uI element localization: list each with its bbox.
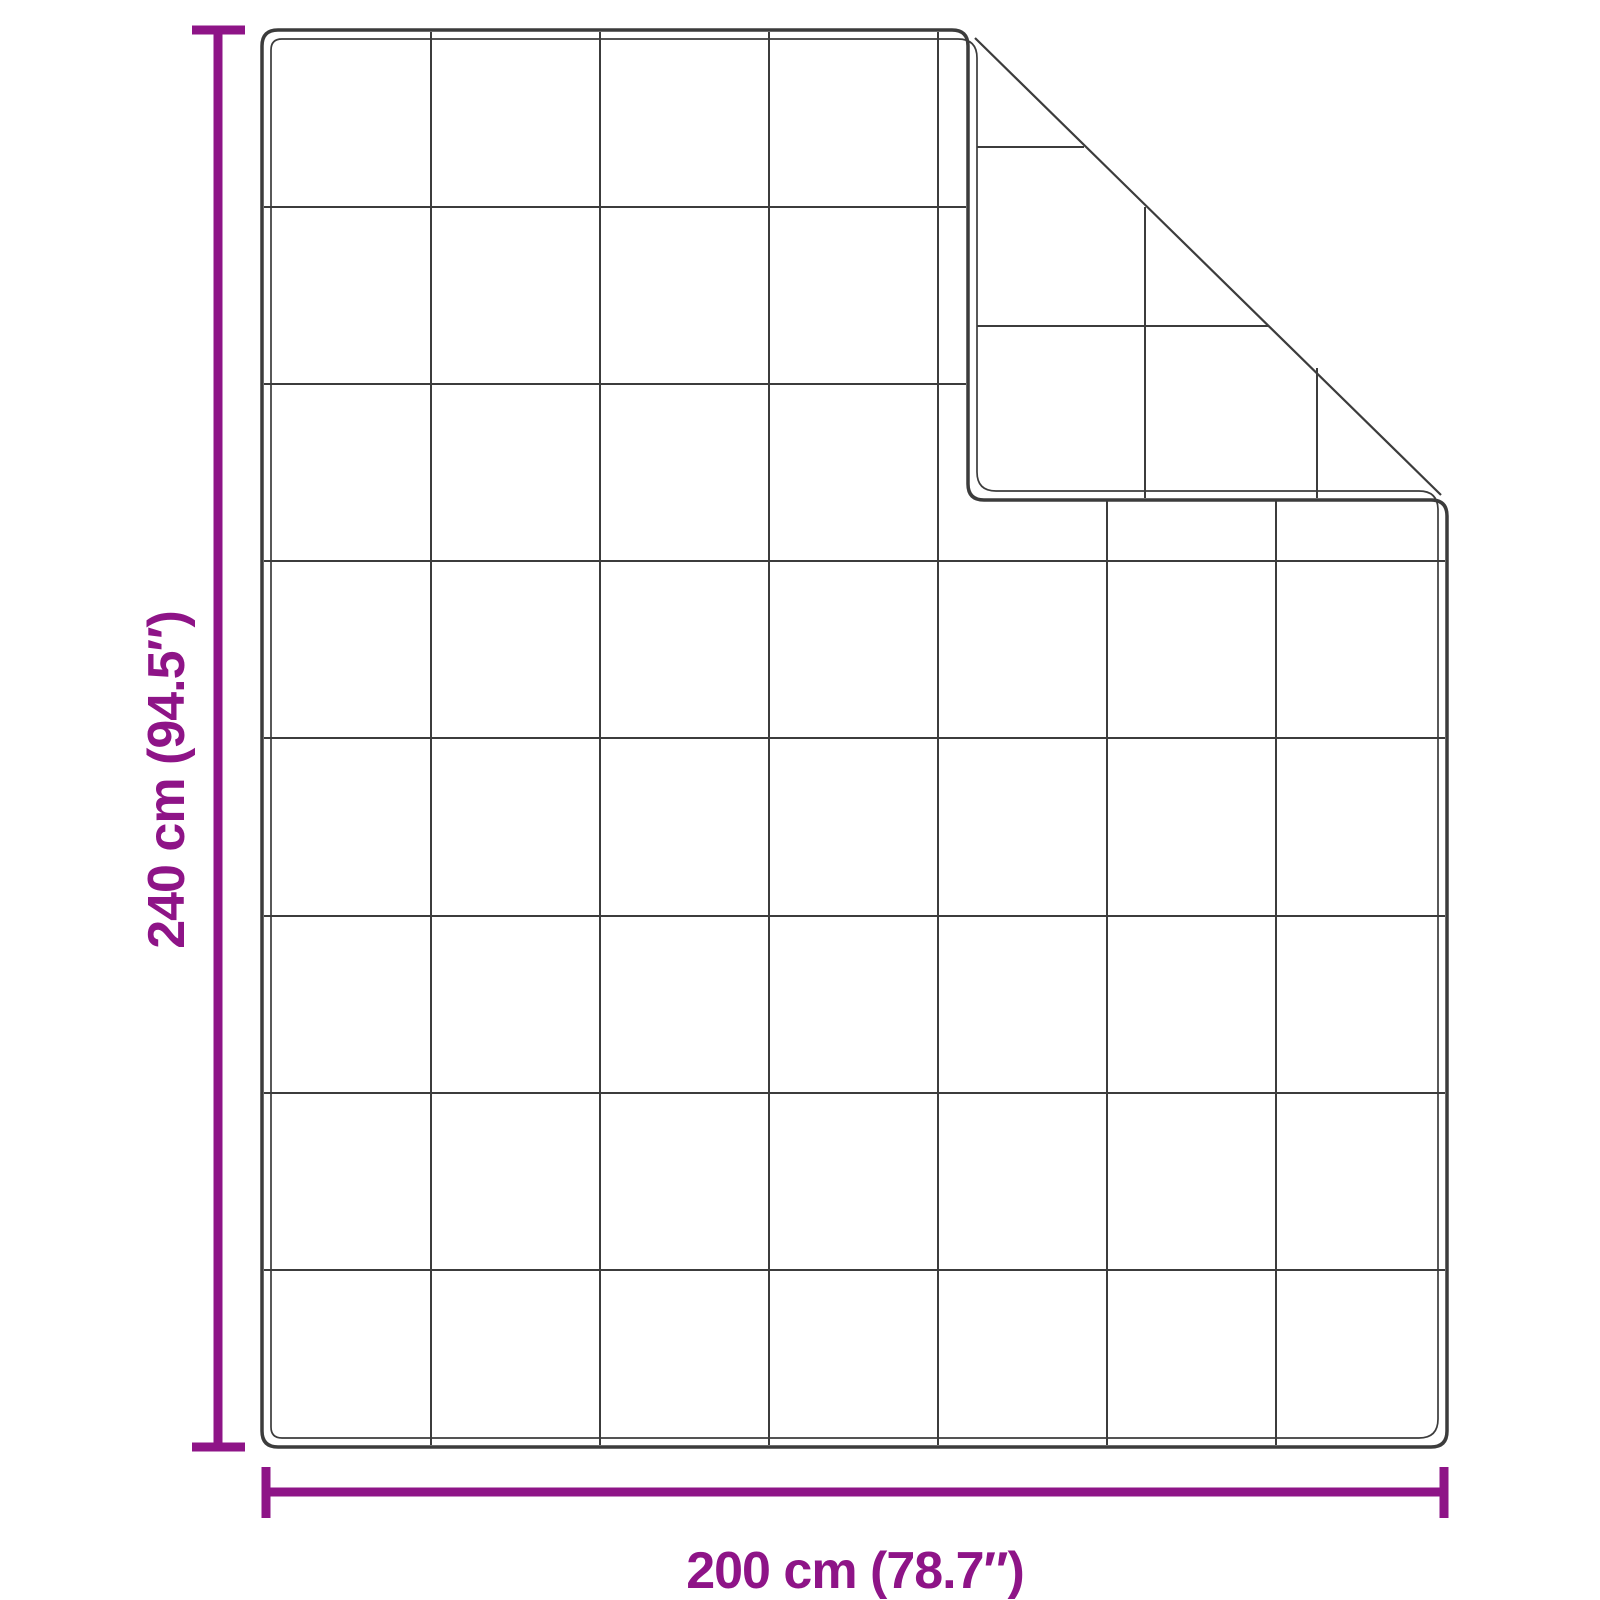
width-dimension-label: 200 cm (78.7″) [686, 1542, 1024, 1600]
main-quilt-grid [264, 32, 1445, 1445]
diagram-svg: 240 cm (94.5″) 200 cm (78.7″) [0, 0, 1600, 1600]
blanket [262, 30, 1447, 1447]
height-dimension-label: 240 cm (94.5″) [138, 611, 196, 949]
blanket-dimension-diagram: 240 cm (94.5″) 200 cm (78.7″) [0, 0, 1600, 1600]
fold-crease-line [975, 38, 1441, 495]
height-dimension [192, 30, 245, 1447]
width-dimension [266, 1467, 1444, 1518]
